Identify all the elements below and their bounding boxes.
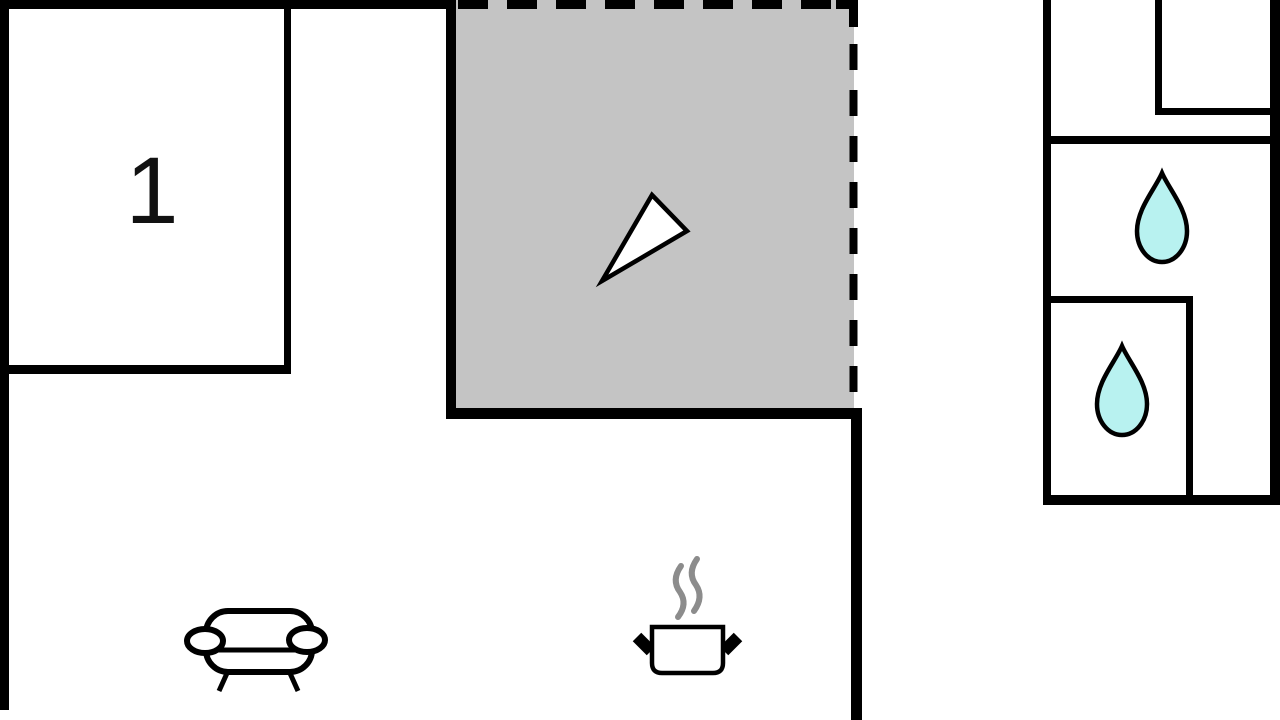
- cooking-pot-icon: [637, 559, 738, 673]
- sofa-icon: [187, 611, 325, 691]
- terrace-area: [451, 0, 854, 414]
- room-number-label: 1: [126, 138, 179, 244]
- pot-handle-left: [637, 637, 651, 651]
- bathroom-bottom-wall: [1043, 495, 1280, 505]
- bathroom-alcove-bottom-wall: [1155, 108, 1280, 115]
- wc-top-wall: [1051, 296, 1193, 303]
- bathroom-left-wall: [1043, 0, 1051, 505]
- bathroom-right-wall: [1270, 0, 1280, 505]
- bathroom-annex: [1043, 0, 1280, 505]
- sofa-armrest-left: [187, 629, 223, 653]
- pot-handle-right: [724, 637, 738, 651]
- bedroom-right-wall: [284, 4, 291, 373]
- bathroom-divider-wall: [1051, 136, 1280, 144]
- wc-right-wall: [1186, 296, 1193, 501]
- water-droplet-icon: [1097, 346, 1147, 435]
- sofa-armrest-right: [289, 628, 325, 652]
- steam-icon: [692, 559, 700, 611]
- bathroom-alcove-left-wall: [1155, 0, 1162, 112]
- terrace-bottom-wall: [446, 408, 862, 419]
- pot-body: [652, 627, 723, 673]
- left-wall: [0, 0, 9, 710]
- water-droplet-icon: [1137, 173, 1187, 262]
- living-room-right-wall: [851, 411, 862, 720]
- bedroom-bottom-wall: [0, 365, 291, 374]
- steam-icon: [676, 566, 684, 617]
- floor-plan: 1: [0, 0, 1280, 720]
- top-wall: [0, 0, 456, 9]
- terrace-left-wall: [446, 0, 456, 419]
